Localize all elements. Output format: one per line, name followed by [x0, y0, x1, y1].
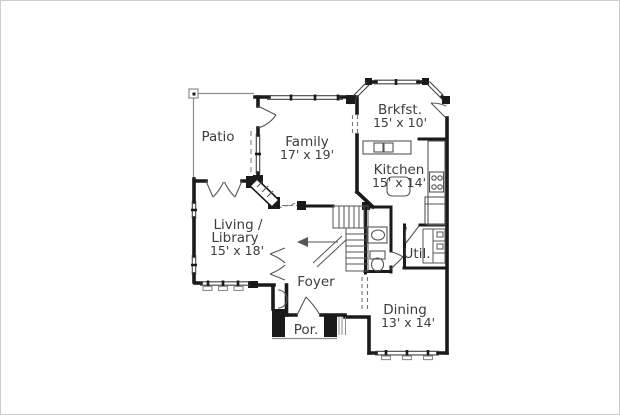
room-label-foyer: Foyer: [297, 274, 335, 290]
room-label-porch: Por.: [294, 322, 319, 338]
entry-steps: [339, 317, 346, 335]
room-label-utility: Util.: [404, 246, 431, 262]
bathroom-fixtures: [367, 227, 387, 271]
kitchen-sink-right: [384, 143, 393, 152]
sink-icon: [372, 230, 385, 240]
room-dims-kitchen: 15' x 14': [372, 175, 426, 190]
floor-plan-image: Patio Family 17' x 19' Brkfst. 15' x 10'…: [0, 0, 620, 415]
kitchen-sink-left: [374, 143, 383, 152]
room-dims-breakfast: 15' x 10': [373, 115, 427, 130]
porch-column-left: [272, 309, 285, 337]
room-dims-family: 17' x 19': [280, 147, 334, 162]
toilet-icon: [372, 258, 384, 271]
porch-column-right: [324, 316, 337, 337]
room-dims-dining: 13' x 14': [381, 315, 435, 330]
room-label-patio: Patio: [201, 129, 234, 145]
room-dims-living: 15' x 18': [210, 243, 264, 258]
stair-up-arrow: [297, 237, 308, 247]
right-counter: [428, 141, 445, 225]
room-labels: Patio Family 17' x 19' Brkfst. 15' x 10'…: [201, 102, 435, 338]
staircase: [297, 206, 368, 271]
floor-plan-drawing: Patio Family 17' x 19' Brkfst. 15' x 10'…: [1, 1, 619, 414]
